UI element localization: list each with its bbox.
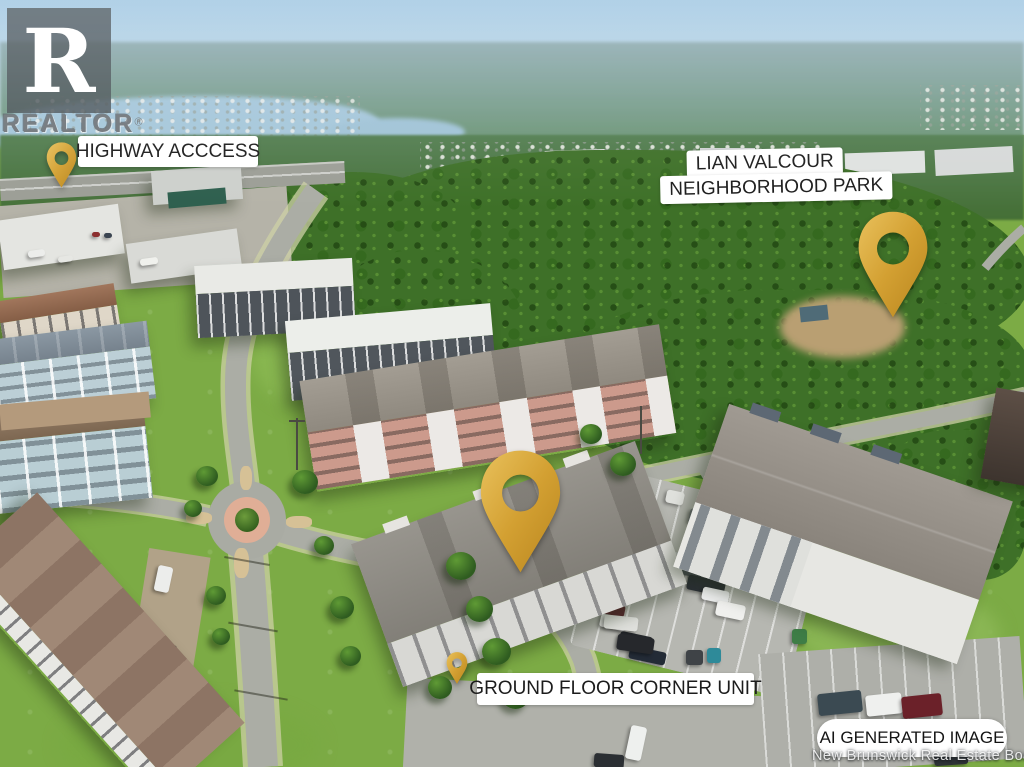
- tree: [610, 452, 636, 476]
- tree: [580, 424, 602, 444]
- car: [901, 693, 943, 719]
- roundabout-garden: [235, 508, 259, 532]
- tree: [340, 646, 361, 666]
- tree: [212, 628, 230, 645]
- highway-access-label: HIGHWAY ACCCESS: [78, 136, 258, 167]
- splitter-island: [286, 516, 312, 528]
- map-pin-icon: [445, 650, 469, 686]
- tree: [206, 586, 226, 605]
- map-pin-icon: [474, 447, 567, 576]
- utility-pole: [640, 406, 642, 454]
- map-pin-icon: [853, 204, 933, 325]
- tree: [184, 500, 202, 517]
- tree: [292, 470, 318, 494]
- board-watermark: New Brunswick Real Estate Board: [812, 748, 1024, 764]
- dumpster: [792, 629, 807, 644]
- suv: [817, 690, 863, 716]
- dumpster: [686, 650, 703, 665]
- registered-trademark-symbol: ®: [135, 117, 143, 129]
- tree: [446, 552, 476, 580]
- tree: [482, 638, 511, 665]
- tree: [196, 466, 218, 486]
- ground-floor-label: GROUND FLOOR CORNER UNIT: [477, 673, 754, 705]
- tree: [466, 596, 493, 622]
- realtor-wordmark: REALTOR®: [2, 110, 143, 139]
- car: [594, 753, 625, 767]
- splitter-island: [234, 548, 249, 578]
- park-label-line2: NEIGHBORHOOD PARK: [660, 171, 893, 204]
- realtor-logo: R: [7, 8, 111, 113]
- realtor-wordmark-text: REALTOR: [2, 110, 135, 138]
- dumpster: [707, 648, 721, 663]
- car: [865, 692, 903, 717]
- realtor-logo-letter: R: [22, 17, 95, 105]
- tree: [330, 596, 354, 619]
- park-label: LIAN VALCOUR NEIGHBORHOOD PARK: [659, 147, 870, 204]
- map-pin-icon: [44, 141, 79, 189]
- splitter-island: [240, 466, 252, 490]
- utility-pole-arm: [289, 420, 305, 422]
- aerial-photo: HIGHWAY ACCCESS LIAN VALCOUR NEIGHBORHOO…: [0, 0, 1024, 767]
- tree: [314, 536, 334, 555]
- utility-pole: [296, 418, 298, 470]
